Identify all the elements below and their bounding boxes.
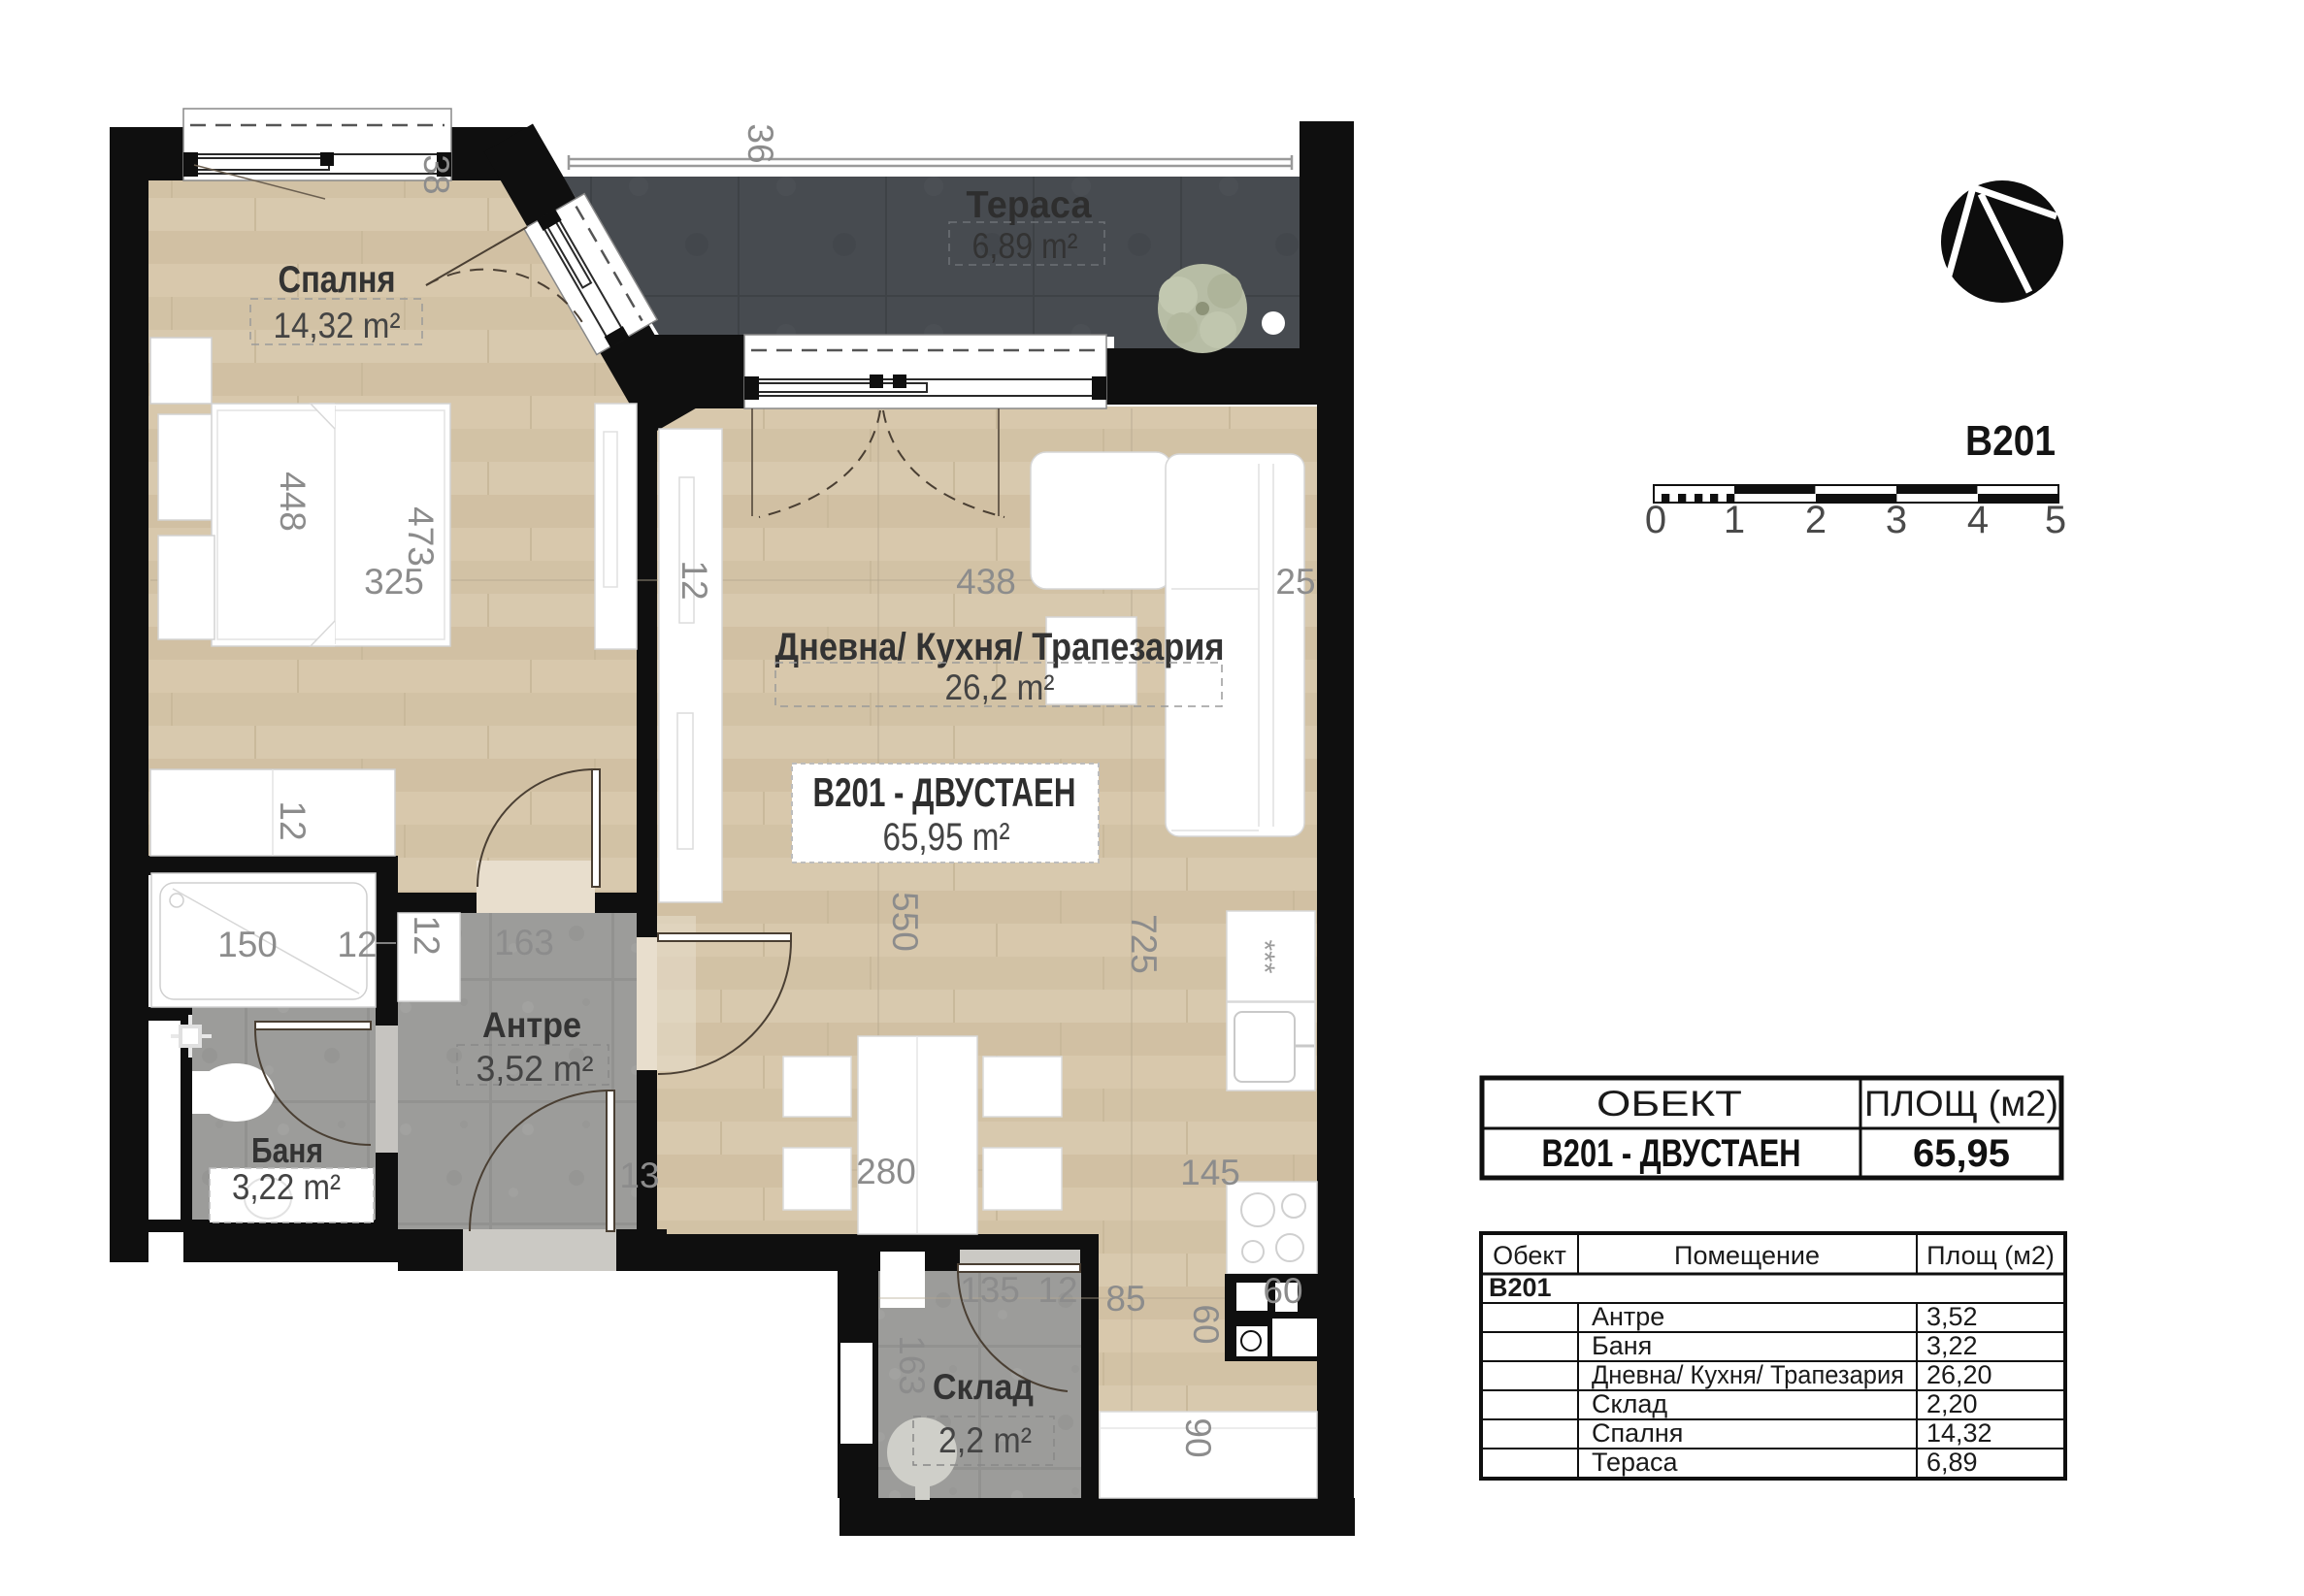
svg-text:3,22: 3,22 xyxy=(1926,1331,1978,1360)
svg-text:725: 725 xyxy=(1124,914,1164,974)
svg-text:B201: B201 xyxy=(1965,417,2056,465)
svg-text:3,22 m²: 3,22 m² xyxy=(232,1167,341,1207)
svg-text:135: 135 xyxy=(960,1270,1020,1310)
svg-text:163: 163 xyxy=(494,923,554,962)
svg-text:14,32: 14,32 xyxy=(1926,1418,1992,1448)
svg-text:3,52: 3,52 xyxy=(1926,1302,1978,1331)
svg-text:90: 90 xyxy=(1178,1417,1218,1457)
svg-text:12: 12 xyxy=(273,800,313,840)
svg-text:2,20: 2,20 xyxy=(1926,1389,1978,1418)
svg-text:3,52 m²: 3,52 m² xyxy=(477,1049,594,1089)
svg-text:Дневна/ Кухня/ Трапезария: Дневна/ Кухня/ Трапезария xyxy=(1592,1360,1904,1389)
svg-text:325: 325 xyxy=(364,562,424,602)
svg-text:B201 - ДВУСТАЕН: B201 - ДВУСТАЕН xyxy=(813,769,1076,815)
svg-text:85: 85 xyxy=(1105,1279,1145,1319)
svg-text:B201 - ДВУСТАЕН: B201 - ДВУСТАЕН xyxy=(1542,1132,1801,1175)
svg-text:Антре: Антре xyxy=(482,1005,581,1045)
svg-text:B201: B201 xyxy=(1489,1273,1552,1302)
svg-text:Баня: Баня xyxy=(251,1130,323,1170)
svg-text:163: 163 xyxy=(892,1335,932,1395)
svg-text:Баня: Баня xyxy=(1592,1331,1652,1360)
svg-text:Склад: Склад xyxy=(1592,1389,1667,1418)
svg-text:26,20: 26,20 xyxy=(1926,1360,1992,1389)
svg-text:2,2 m²: 2,2 m² xyxy=(938,1420,1032,1460)
svg-text:6,89 m²: 6,89 m² xyxy=(972,226,1078,266)
svg-text:Площ (м2): Площ (м2) xyxy=(1926,1241,2055,1270)
svg-text:ОБЕКТ: ОБЕКТ xyxy=(1596,1084,1742,1124)
svg-text:14,32 m²: 14,32 m² xyxy=(274,306,401,345)
svg-text:Помещение: Помещение xyxy=(1674,1241,1820,1270)
svg-text:280: 280 xyxy=(856,1152,916,1191)
svg-text:2: 2 xyxy=(1805,499,1827,541)
svg-text:473: 473 xyxy=(401,506,441,567)
svg-text:150: 150 xyxy=(217,925,278,964)
svg-text:Тераса: Тераса xyxy=(967,184,1092,226)
svg-text:25: 25 xyxy=(1275,562,1315,602)
svg-text:Склад: Склад xyxy=(933,1367,1034,1407)
svg-text:60: 60 xyxy=(1186,1304,1226,1344)
svg-text:0: 0 xyxy=(1645,499,1666,541)
svg-text:5: 5 xyxy=(2045,499,2066,541)
svg-text:448: 448 xyxy=(273,472,313,532)
svg-text:6,89: 6,89 xyxy=(1926,1448,1978,1477)
svg-text:13: 13 xyxy=(619,1156,659,1195)
svg-text:Спалня: Спалня xyxy=(279,259,396,301)
svg-text:12: 12 xyxy=(1037,1270,1077,1310)
svg-text:60: 60 xyxy=(1263,1271,1302,1311)
svg-text:12: 12 xyxy=(337,925,377,964)
svg-text:3: 3 xyxy=(1886,499,1907,541)
svg-text:65,95 m²: 65,95 m² xyxy=(883,816,1010,859)
svg-text:145: 145 xyxy=(1180,1153,1240,1192)
svg-text:ПЛОЩ (м2): ПЛОЩ (м2) xyxy=(1864,1084,2058,1124)
svg-text:4: 4 xyxy=(1967,499,1989,541)
svg-text:550: 550 xyxy=(885,892,925,952)
svg-text:1: 1 xyxy=(1724,499,1745,541)
svg-text:Спалня: Спалня xyxy=(1592,1418,1683,1448)
svg-text:***: *** xyxy=(1248,939,1280,973)
svg-text:26,2 m²: 26,2 m² xyxy=(945,668,1055,707)
svg-text:12: 12 xyxy=(675,560,714,600)
svg-text:38: 38 xyxy=(416,154,456,194)
svg-text:Тераса: Тераса xyxy=(1592,1448,1679,1477)
svg-text:36: 36 xyxy=(741,123,780,163)
svg-text:Обект: Обект xyxy=(1493,1241,1566,1270)
svg-text:12: 12 xyxy=(407,915,446,955)
svg-text:65,95: 65,95 xyxy=(1913,1132,2010,1175)
svg-text:438: 438 xyxy=(956,562,1016,602)
svg-text:Антре: Антре xyxy=(1592,1302,1664,1331)
